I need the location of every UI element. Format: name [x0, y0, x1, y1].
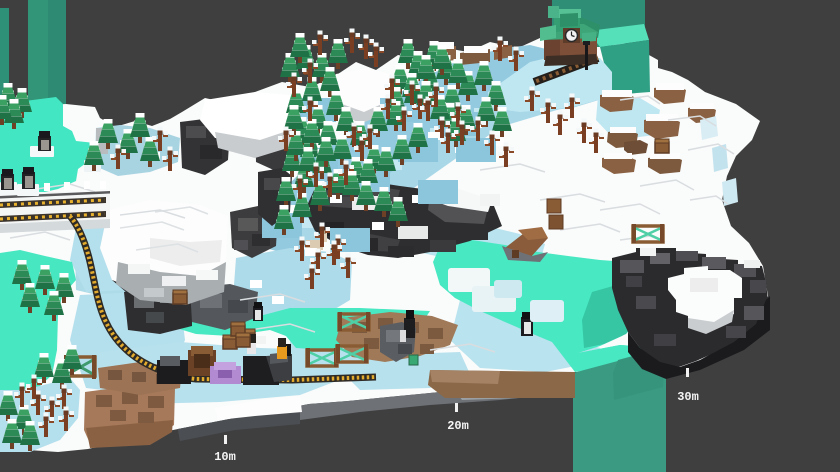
svg-text:10m: 10m	[214, 450, 236, 464]
svg-text:30m: 30m	[677, 390, 699, 404]
svg-text:20m: 20m	[447, 419, 469, 433]
